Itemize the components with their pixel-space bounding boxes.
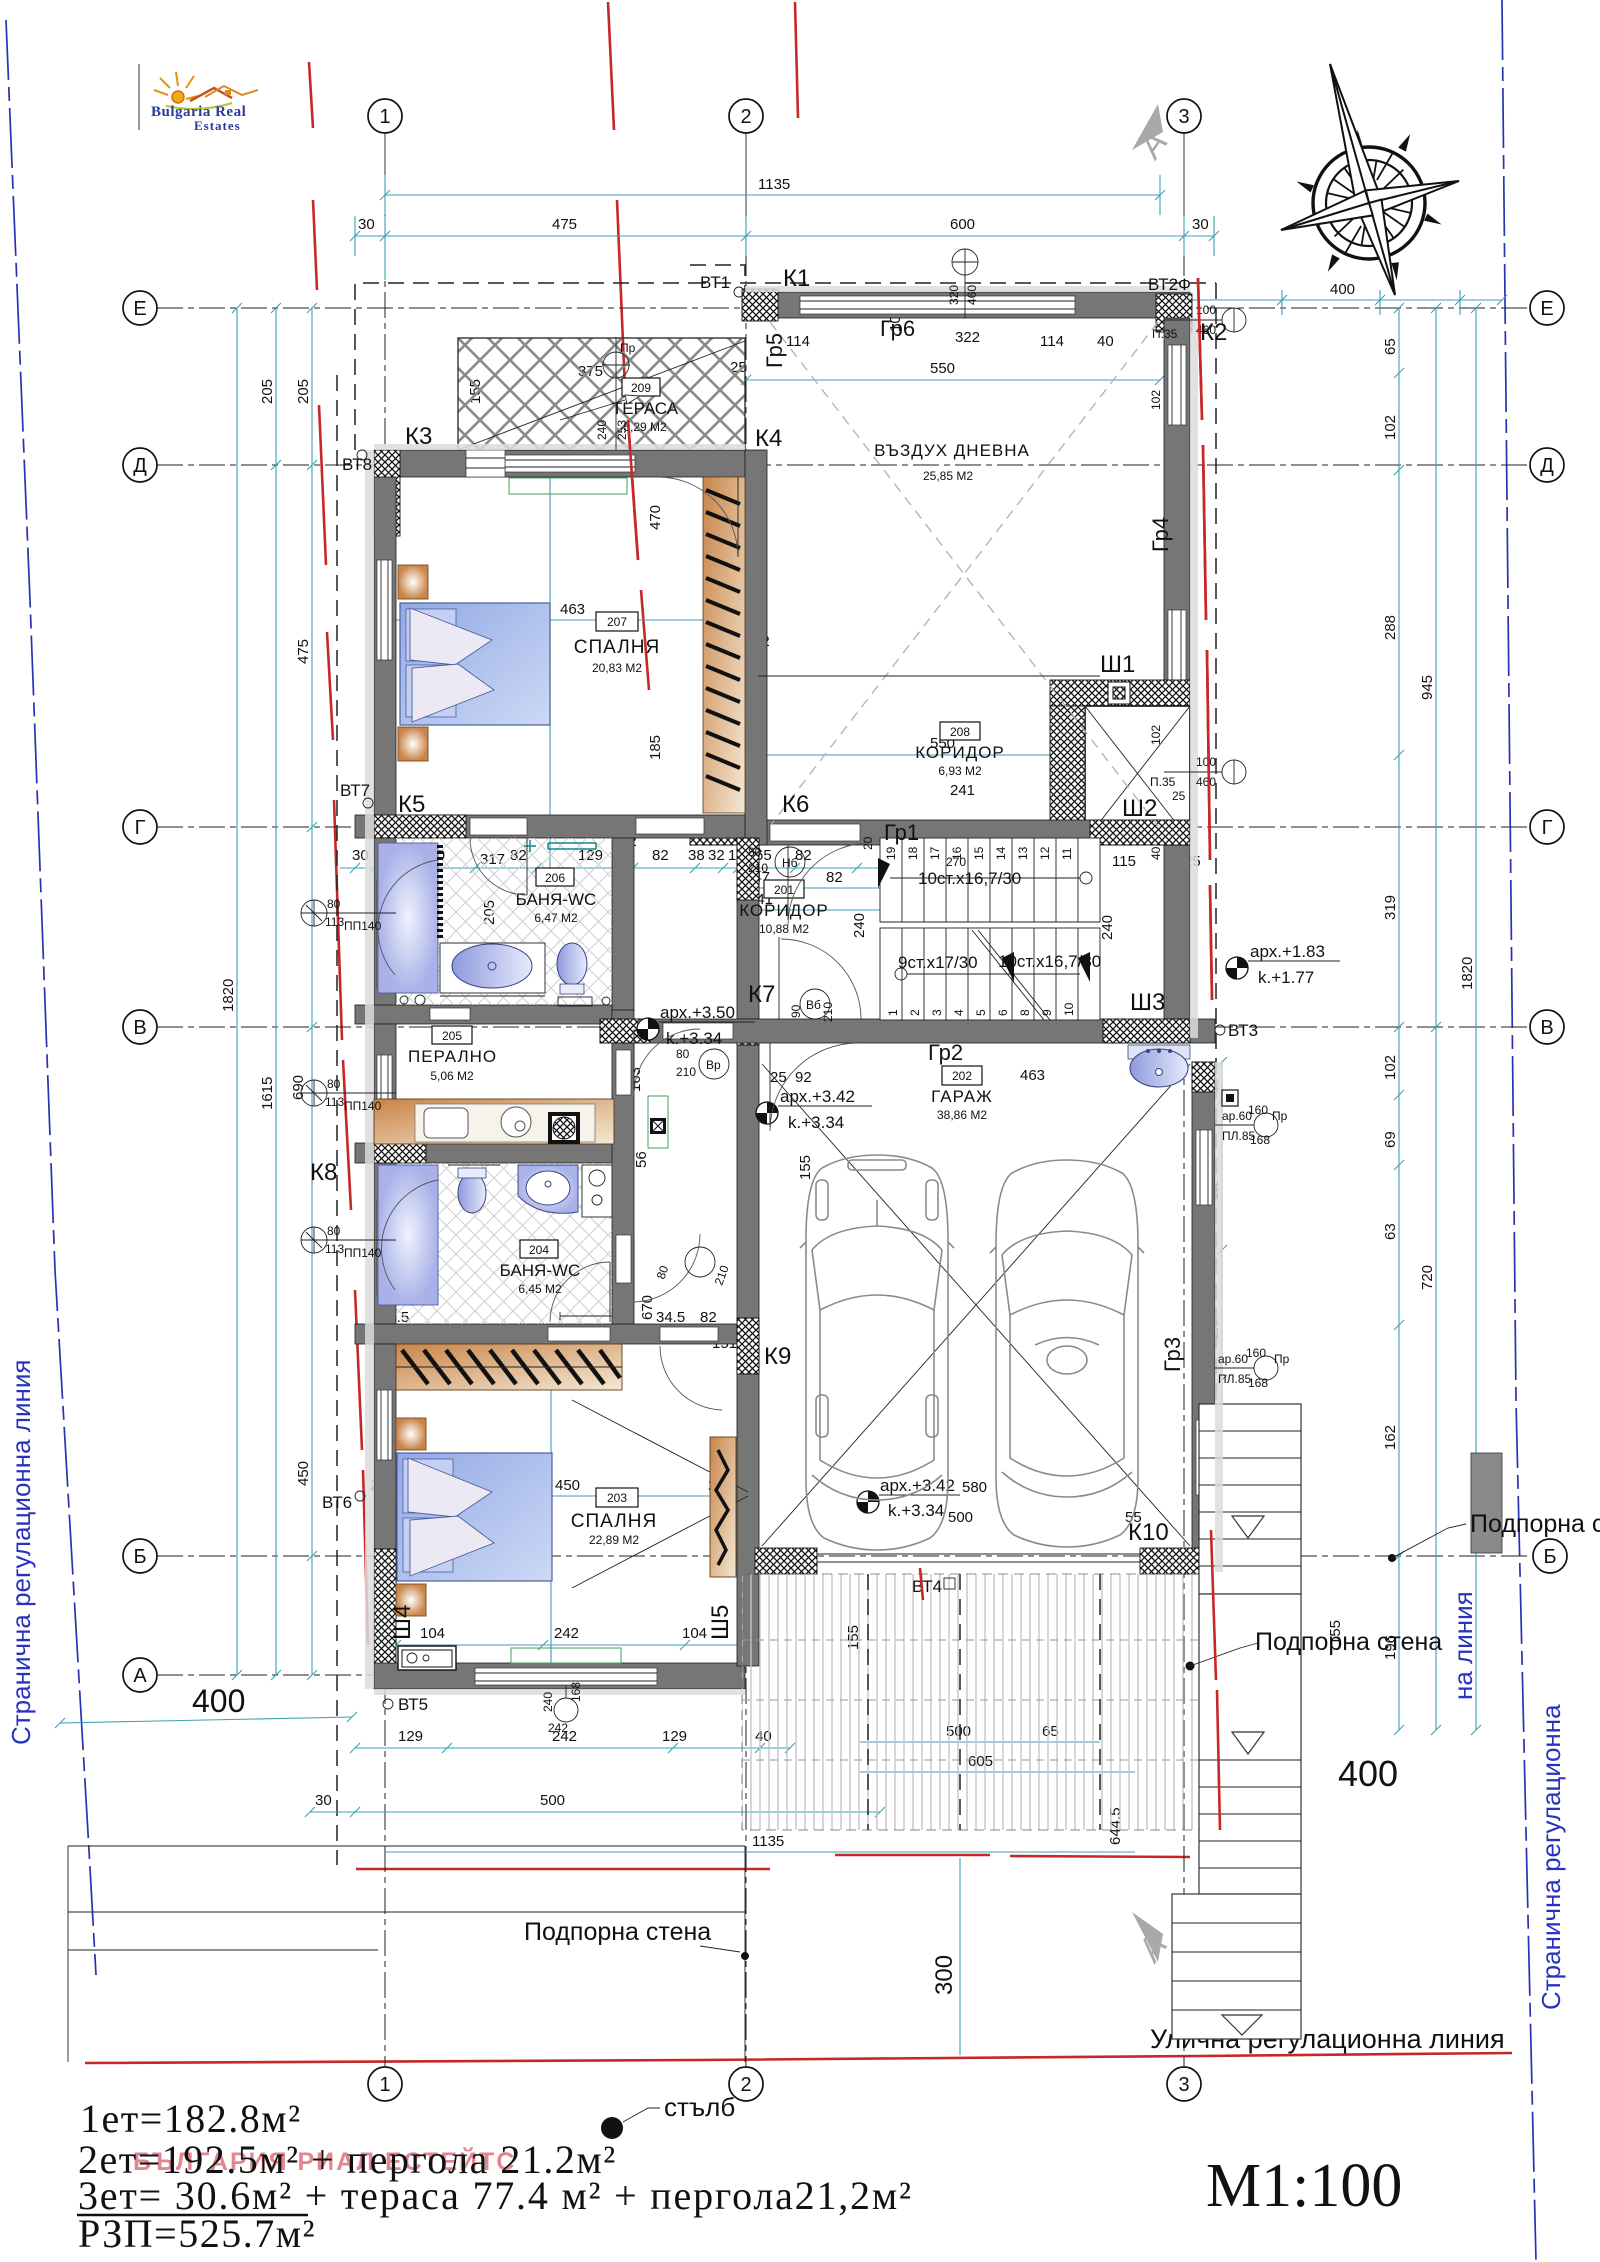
svg-text:25: 25 <box>1172 789 1186 803</box>
svg-text:82: 82 <box>652 847 669 864</box>
svg-text:319: 319 <box>1382 895 1399 920</box>
svg-text:600: 600 <box>950 216 975 233</box>
svg-text:Подпорна стена: Подпорна стена <box>1255 1628 1442 1656</box>
svg-text:Д: Д <box>133 455 147 477</box>
svg-text:102: 102 <box>1382 1055 1399 1080</box>
svg-text:113: 113 <box>325 1242 344 1256</box>
svg-text:210: 210 <box>821 1002 835 1022</box>
svg-text:22,89 М2: 22,89 М2 <box>589 1533 639 1547</box>
svg-text:Пр: Пр <box>620 341 636 355</box>
svg-text:470: 470 <box>647 505 664 530</box>
svg-text:202: 202 <box>952 1069 972 1083</box>
svg-text:Гр5: Гр5 <box>762 333 787 368</box>
svg-text:40: 40 <box>1097 333 1114 350</box>
svg-text:Б: Б <box>133 1546 146 1568</box>
svg-text:205: 205 <box>442 1029 462 1043</box>
svg-text:69: 69 <box>1382 1131 1399 1148</box>
svg-text:460: 460 <box>1196 775 1216 789</box>
svg-text:400: 400 <box>1338 1753 1398 1794</box>
svg-text:К1: К1 <box>783 265 810 292</box>
svg-text:580: 580 <box>962 1479 987 1496</box>
svg-text:205: 205 <box>259 379 276 404</box>
svg-text:10,88 М2: 10,88 М2 <box>759 922 809 936</box>
svg-text:3: 3 <box>930 1009 944 1016</box>
svg-text:400: 400 <box>192 1683 245 1719</box>
svg-text:460: 460 <box>965 285 979 305</box>
svg-text:2: 2 <box>740 106 751 128</box>
svg-text:25,85 М2: 25,85 М2 <box>923 469 973 483</box>
svg-text:Ш4: Ш4 <box>389 1605 416 1640</box>
svg-text:ВТ1: ВТ1 <box>700 273 730 292</box>
svg-text:13: 13 <box>1016 846 1030 860</box>
svg-text:92: 92 <box>795 1069 812 1086</box>
svg-text:Ш3: Ш3 <box>1130 989 1165 1016</box>
svg-text:82: 82 <box>700 1309 717 1326</box>
svg-text:201: 201 <box>774 883 794 897</box>
svg-text:К6: К6 <box>782 791 809 818</box>
svg-text:242: 242 <box>548 1721 568 1735</box>
svg-text:9ст.х17/30: 9ст.х17/30 <box>898 953 978 972</box>
svg-text:38: 38 <box>688 847 705 864</box>
svg-text:168: 168 <box>1248 1376 1268 1390</box>
svg-text:80: 80 <box>748 845 762 859</box>
svg-text:242: 242 <box>554 1625 579 1642</box>
svg-text:168: 168 <box>1250 1133 1270 1147</box>
svg-text:38,86 М2: 38,86 М2 <box>937 1108 987 1122</box>
svg-text:17: 17 <box>928 846 942 860</box>
svg-text:32: 32 <box>708 847 725 864</box>
svg-text:Гр3: Гр3 <box>1160 1337 1185 1372</box>
svg-text:203: 203 <box>607 1491 627 1505</box>
svg-text:k.+3.34: k.+3.34 <box>788 1113 844 1132</box>
svg-text:П.35: П.35 <box>1150 775 1176 789</box>
svg-text:185: 185 <box>647 735 664 760</box>
svg-text:Пр: Пр <box>1274 1352 1290 1366</box>
svg-text:6,93 М2: 6,93 М2 <box>938 764 982 778</box>
svg-text:1ет=182.8м²: 1ет=182.8м² <box>80 2096 302 2141</box>
svg-text:114: 114 <box>786 333 810 350</box>
svg-text:12: 12 <box>1038 846 1052 860</box>
svg-text:115: 115 <box>1112 853 1136 870</box>
svg-text:30: 30 <box>1192 216 1209 233</box>
svg-text:Ш1: Ш1 <box>1100 651 1135 678</box>
svg-text:945: 945 <box>1419 675 1436 700</box>
svg-text:Estates: Estates <box>194 118 241 133</box>
svg-text:450: 450 <box>295 1461 312 1486</box>
svg-text:10: 10 <box>1062 1002 1076 1016</box>
svg-text:Пр: Пр <box>1272 1109 1288 1123</box>
svg-text:63: 63 <box>1382 1223 1399 1240</box>
svg-text:БАНЯ-WC: БАНЯ-WC <box>516 890 597 909</box>
svg-text:1: 1 <box>886 1009 900 1016</box>
svg-text:1820: 1820 <box>220 979 237 1012</box>
svg-text:240: 240 <box>595 420 609 440</box>
svg-text:100: 100 <box>1196 755 1216 769</box>
svg-text:400: 400 <box>1330 281 1355 298</box>
svg-text:Б: Б <box>1543 1546 1556 1568</box>
svg-text:А: А <box>133 1665 147 1687</box>
svg-text:720: 720 <box>1419 1265 1436 1290</box>
svg-text:2: 2 <box>740 2074 751 2096</box>
svg-text:Странична регулационна: Странична регулационна <box>1536 1704 1566 2010</box>
svg-text:Е: Е <box>1540 298 1553 320</box>
svg-text:240: 240 <box>541 1692 555 1712</box>
svg-text:129: 129 <box>662 1728 687 1745</box>
svg-text:5,06 М2: 5,06 М2 <box>430 1069 474 1083</box>
svg-text:56: 56 <box>633 1151 650 1168</box>
svg-text:209: 209 <box>631 381 651 395</box>
svg-text:208: 208 <box>950 725 970 739</box>
svg-text:160: 160 <box>1246 1346 1266 1360</box>
svg-text:205: 205 <box>295 379 312 404</box>
svg-text:Подпорна ст: Подпорна ст <box>1470 1510 1600 1538</box>
svg-text:1615: 1615 <box>259 1077 276 1110</box>
svg-text:288: 288 <box>1382 615 1399 640</box>
svg-text:ВЪЗДУХ ДНЕВНА: ВЪЗДУХ ДНЕВНА <box>874 441 1030 460</box>
svg-text:на линия: на линия <box>1448 1591 1478 1700</box>
svg-text:В: В <box>1540 1017 1553 1039</box>
svg-text:k.+3.34: k.+3.34 <box>888 1501 944 1520</box>
svg-text:102: 102 <box>1382 415 1399 440</box>
svg-text:СПАЛНЯ: СПАЛНЯ <box>574 637 660 658</box>
svg-text:15: 15 <box>972 846 986 860</box>
svg-text:6: 6 <box>996 1009 1010 1016</box>
svg-text:К3: К3 <box>405 423 432 450</box>
svg-text:113: 113 <box>325 915 344 929</box>
svg-text:65: 65 <box>1382 338 1399 355</box>
svg-text:206: 206 <box>545 871 565 885</box>
svg-text:270: 270 <box>946 855 966 869</box>
svg-text:4: 4 <box>952 1009 966 1016</box>
svg-text:БАНЯ-WC: БАНЯ-WC <box>500 1261 581 1280</box>
svg-text:300: 300 <box>931 1955 958 1995</box>
svg-text:Д: Д <box>1540 455 1554 477</box>
svg-text:80: 80 <box>327 1077 341 1091</box>
svg-text:162: 162 <box>1382 1425 1399 1450</box>
svg-text:155: 155 <box>797 1155 814 1180</box>
svg-text:1135: 1135 <box>758 176 790 193</box>
svg-text:К10: К10 <box>1128 1519 1169 1546</box>
svg-text:РЗП=525.7м²: РЗП=525.7м² <box>78 2211 316 2256</box>
svg-text:Нб: Нб <box>782 856 798 870</box>
svg-text:ар.60: ар.60 <box>1218 1352 1248 1366</box>
svg-text:К4: К4 <box>755 425 782 452</box>
svg-text:463: 463 <box>560 601 585 618</box>
svg-text:320: 320 <box>947 285 961 305</box>
svg-text:20,83 М2: 20,83 М2 <box>592 661 642 675</box>
svg-text:СПАЛНЯ: СПАЛНЯ <box>571 1511 657 1532</box>
svg-text:6,47 М2: 6,47 М2 <box>534 911 578 925</box>
svg-text:К5: К5 <box>398 791 425 818</box>
svg-text:ВТ5: ВТ5 <box>398 1695 428 1714</box>
svg-text:475: 475 <box>552 216 577 233</box>
svg-text:102: 102 <box>1149 725 1163 745</box>
svg-text:ВТ4: ВТ4 <box>912 1577 942 1596</box>
svg-text:102: 102 <box>1149 390 1163 410</box>
svg-text:КОРИДОР: КОРИДОР <box>915 743 1005 762</box>
svg-text:ВТ7: ВТ7 <box>340 781 370 800</box>
svg-text:ПП140: ПП140 <box>344 919 382 933</box>
svg-text:ПЕРАЛНО: ПЕРАЛНО <box>408 1047 497 1066</box>
svg-text:Гр1: Гр1 <box>884 820 919 845</box>
svg-text:Странична регулационна линия: Странична регулационна линия <box>6 1360 36 1745</box>
svg-text:ПЛ.85: ПЛ.85 <box>1218 1372 1252 1386</box>
svg-text:8: 8 <box>1018 1009 1032 1016</box>
svg-text:3: 3 <box>1178 2074 1189 2096</box>
svg-text:80: 80 <box>327 897 341 911</box>
svg-text:210: 210 <box>676 1065 696 1079</box>
svg-text:475: 475 <box>295 639 312 664</box>
svg-text:1135: 1135 <box>752 1833 784 1850</box>
svg-text:Г: Г <box>135 817 146 839</box>
svg-text:П.35: П.35 <box>1152 327 1178 341</box>
svg-text:ТЕРАСА: ТЕРАСА <box>612 399 679 418</box>
svg-text:30: 30 <box>315 1792 332 1809</box>
svg-text:2: 2 <box>908 1009 922 1016</box>
svg-text:322: 322 <box>955 329 980 346</box>
svg-text:241: 241 <box>950 782 975 799</box>
svg-text:К8: К8 <box>310 1159 337 1186</box>
svg-text:168: 168 <box>569 1682 583 1702</box>
svg-text:550: 550 <box>930 360 955 377</box>
svg-text:18: 18 <box>906 846 920 860</box>
svg-text:М1:100: М1:100 <box>1206 2152 1402 2220</box>
svg-text:129: 129 <box>398 1728 423 1745</box>
svg-text:Ш5: Ш5 <box>707 1605 734 1640</box>
svg-text:Гр2: Гр2 <box>928 1040 963 1065</box>
svg-text:80: 80 <box>676 1047 690 1061</box>
svg-text:К9: К9 <box>764 1343 791 1370</box>
svg-text:Вр: Вр <box>706 1058 721 1072</box>
svg-text:Е: Е <box>133 298 146 320</box>
svg-text:стълб: стълб <box>664 2092 735 2122</box>
svg-text:арх.+1.83: арх.+1.83 <box>1250 942 1325 961</box>
svg-text:104: 104 <box>420 1625 445 1642</box>
svg-text:160: 160 <box>1248 1103 1268 1117</box>
svg-text:ВТ2Ф: ВТ2Ф <box>1148 275 1191 294</box>
svg-text:Гр4: Гр4 <box>1148 517 1173 552</box>
svg-text:Ш2: Ш2 <box>1122 795 1157 822</box>
svg-text:30: 30 <box>358 216 375 233</box>
svg-text:690: 690 <box>290 1075 307 1100</box>
svg-text:1: 1 <box>379 2074 390 2096</box>
svg-text:90: 90 <box>789 1004 803 1018</box>
svg-text:40: 40 <box>1149 846 1163 860</box>
svg-text:ПП140: ПП140 <box>344 1099 382 1113</box>
svg-text:3: 3 <box>1178 106 1189 128</box>
svg-text:210: 210 <box>748 861 768 875</box>
svg-text:1820: 1820 <box>1459 957 1476 990</box>
svg-text:80: 80 <box>327 1224 341 1238</box>
svg-text:ВТ8: ВТ8 <box>342 455 372 474</box>
svg-text:арх.+3.42: арх.+3.42 <box>780 1087 855 1106</box>
svg-text:34.5: 34.5 <box>656 1309 685 1326</box>
svg-text:19: 19 <box>884 846 898 860</box>
svg-text:10ст.х16,7/30: 10ст.х16,7/30 <box>918 869 1021 888</box>
svg-text:113: 113 <box>325 1095 344 1109</box>
svg-text:450: 450 <box>555 1477 580 1494</box>
svg-text:500: 500 <box>948 1509 973 1526</box>
svg-text:82: 82 <box>826 869 843 886</box>
svg-text:К7: К7 <box>748 981 775 1008</box>
svg-text:5: 5 <box>974 1009 988 1016</box>
svg-text:14: 14 <box>994 846 1008 860</box>
svg-text:500: 500 <box>540 1792 565 1809</box>
svg-text:ПП140: ПП140 <box>344 1246 382 1260</box>
svg-text:Подпорна стена: Подпорна стена <box>524 1918 711 1946</box>
svg-text:104: 104 <box>682 1625 707 1642</box>
svg-text:240: 240 <box>851 913 868 938</box>
svg-text:204: 204 <box>529 1243 549 1257</box>
svg-text:арх.+3.50: арх.+3.50 <box>660 1003 735 1022</box>
svg-text:КОРИДОР: КОРИДОР <box>739 901 829 920</box>
svg-text:114: 114 <box>1040 333 1064 350</box>
svg-text:ВТ6: ВТ6 <box>322 1493 352 1512</box>
svg-text:Гр6: Гр6 <box>880 316 915 341</box>
svg-text:6,45 М2: 6,45 М2 <box>518 1282 562 1296</box>
svg-text:k.+1.77: k.+1.77 <box>1258 968 1314 987</box>
svg-text:240: 240 <box>1099 915 1116 940</box>
svg-text:ВТ3: ВТ3 <box>1228 1021 1258 1040</box>
svg-text:9: 9 <box>1040 1009 1054 1016</box>
svg-text:k.+3.34: k.+3.34 <box>666 1029 722 1048</box>
svg-text:Вб: Вб <box>806 998 821 1012</box>
svg-text:463: 463 <box>1020 1067 1045 1084</box>
svg-text:Г: Г <box>1542 817 1553 839</box>
svg-text:ГАРАЖ: ГАРАЖ <box>931 1087 993 1106</box>
svg-text:1: 1 <box>379 106 390 128</box>
svg-text:11: 11 <box>1060 847 1074 860</box>
svg-text:В: В <box>133 1017 146 1039</box>
svg-text:207: 207 <box>607 615 627 629</box>
